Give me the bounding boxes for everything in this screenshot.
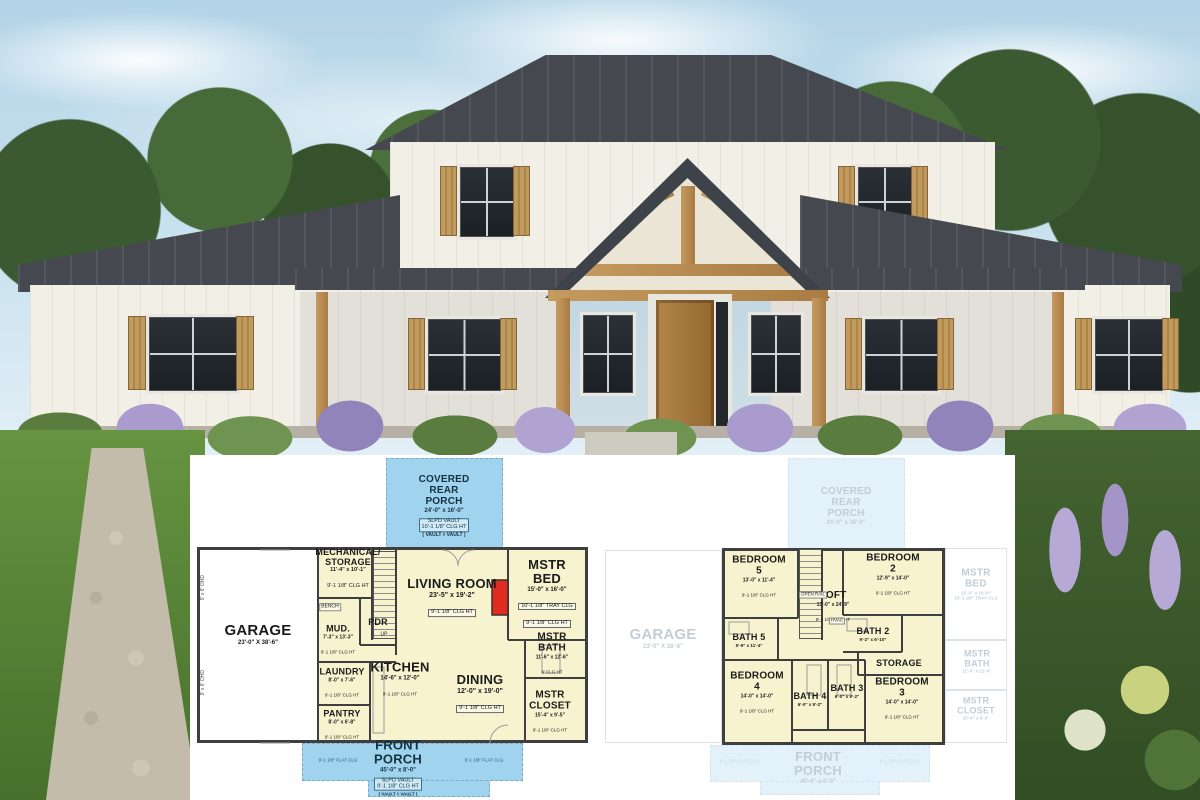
flat-clg-note-right: 9'-1 1/8" FLAT CLG <box>465 759 504 764</box>
flat-clg-note-left: 9'-1 1/8" FLAT CLG <box>319 759 358 764</box>
mstr-bed-label: MSTR BED 15'-0" x 16'-0" 10'-1 1/8" TRAY… <box>516 558 578 628</box>
porch-eave-left <box>295 268 575 290</box>
mstr-bath-label: MSTR BATH 11'-6" x 12'-6" 9' CLG HT <box>526 632 578 677</box>
shutter <box>440 166 457 236</box>
first-floor-plan: COVERED REAR PORCH 24'-0" x 16'-0" SLPD … <box>190 455 597 800</box>
shutter <box>513 166 530 236</box>
screenshot-root: COVERED REAR PORCH 24'-0" x 16'-0" SLPD … <box>0 0 1200 800</box>
pantry-label: PANTRY 8'-0" x 6'-8" 9'-1 1/8" CLG HT <box>315 709 369 742</box>
bath4-label: BATH 4 6'-0" x 9'-2" <box>790 692 830 708</box>
faded-rear-porch-label: COVERED REAR PORCH 24'-0" x 16'-0" <box>814 487 878 527</box>
faded-flat-clg-right: 9'-1 1/8" FLAT CLG <box>880 760 919 765</box>
mechanical-label: MECHANICAL/ STORAGE 11'-4" x 10'-1" 9'-1… <box>313 548 383 592</box>
porch-eave-right <box>805 268 1085 290</box>
garage-door-note: 9' x 8' OHD <box>200 575 206 600</box>
bath5-label: BATH 5 5'-9" x 11'-4" <box>724 633 774 649</box>
truss-tie-beam <box>576 264 799 276</box>
upper-left-window <box>457 164 517 240</box>
mud-label: MUD. 7'-3" x 13'-3" 9'-1 1/8" CLG HT <box>316 624 360 657</box>
bedroom3-label: BEDROOM 3 14'-0" x 14'-0" 9'-1 1/8" CLG … <box>873 677 931 722</box>
faded-mstr-closet-label: MSTR CLOSET 15'-4" x 9'-5" <box>951 696 1001 721</box>
faded-garage-label: GARAGE 23'-0" X 38'-6" <box>613 627 713 651</box>
hvac-note: HVAC <box>829 618 845 625</box>
faded-mstr-bath-label: MSTR BATH 11'-6" x 12'-6" <box>953 649 1001 674</box>
right-landscaping <box>1005 430 1200 800</box>
rear-porch-label: COVERED REAR PORCH 24'-0" x 16'-0" SLPD … <box>412 475 476 539</box>
laundry-label: LAUNDRY 8'-0" x 7'-6" 9'-1 1/8" CLG HT <box>314 667 370 700</box>
pdr-label: PDR <box>361 618 395 628</box>
faded-front-porch-label: FRONT PORCH 45'-0" x 8'-0" <box>787 750 849 786</box>
bedroom5-label: BEDROOM 5 13'-0" x 11'-4" 9'-1 1/8" CLG … <box>730 555 788 600</box>
garage-label: GARAGE 23'-0" X 38'-6" <box>203 623 313 647</box>
mstr-closet-label: MSTR CLOSET 15'-4" x 9'-5" 9'-1 1/8" CLG… <box>524 690 576 735</box>
faded-flat-clg-left: 9'-1 1/8" FLAT CLG <box>720 760 759 765</box>
bedroom4-label: BEDROOM 4 14'-0" x 14'-0" 9'-1 1/8" CLG … <box>728 671 786 716</box>
bath2-label: BATH 2 9'-2" x 6'-10" <box>848 627 898 643</box>
bedroom2-label: BEDROOM 2 12'-9" x 14'-0" 9'-1 1/8" CLG … <box>864 553 922 598</box>
open-rail-note: OPEN RAIL <box>799 592 827 599</box>
entry-steps <box>585 432 677 456</box>
living-room-label: LIVING ROOM 23'-5" x 19'-2" 9'-1 1/8" CL… <box>406 577 498 617</box>
up-note: UP <box>381 632 388 638</box>
faded-mstr-bed-label: MSTR BED 15'-0" x 16'-0" 10'-1 1/8" TRAY… <box>950 568 1002 601</box>
truss-king-post <box>681 186 695 274</box>
second-floor-plan: COVERED REAR PORCH 24'-0" x 16'-0" GARAG… <box>597 455 1015 800</box>
upper-roof <box>365 55 1010 150</box>
dining-label: DINING 12'-0" x 19'-0" 9'-1 1/8" CLG HT <box>444 673 516 713</box>
bench-note: BENCH <box>319 603 341 611</box>
garage-door-note: 9' x 8' OHD <box>200 670 206 695</box>
bath3-label: BATH 3 6'-0" x 9'-2" <box>827 684 867 700</box>
storage-label: STORAGE <box>864 659 934 669</box>
kitchen-label: KITCHEN 14'-6" x 12'-0" 9'-1 1/8" CLG HT <box>365 661 435 700</box>
front-porch-label: FRONT PORCH 45'-0" x 8'-0" SLPD VAULT9'-… <box>365 739 431 798</box>
